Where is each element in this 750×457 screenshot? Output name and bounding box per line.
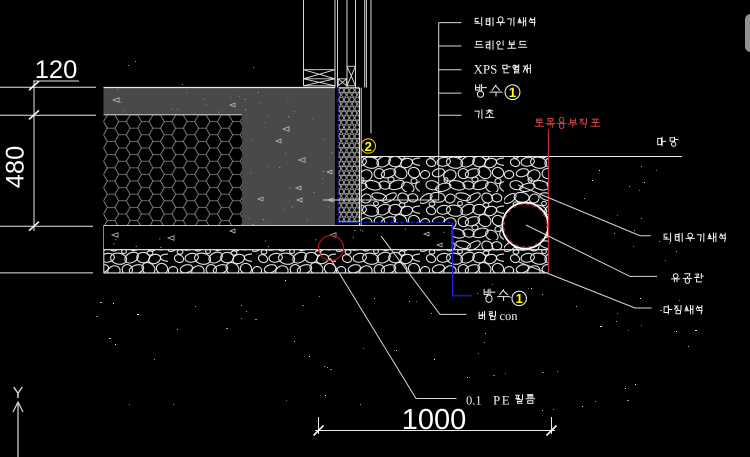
svg-text:XPS: XPS [474,62,498,77]
svg-text:120: 120 [35,56,78,84]
svg-text:1000: 1000 [402,404,467,436]
svg-text:PE: PE [493,393,511,408]
svg-text:1: 1 [509,85,517,100]
svg-text:2: 2 [365,139,372,154]
svg-text:0.1: 0.1 [466,394,482,408]
svg-text:con: con [500,309,519,323]
svg-text:1: 1 [516,291,523,306]
svg-text:480: 480 [2,146,30,189]
svg-text:Y: Y [13,385,24,402]
